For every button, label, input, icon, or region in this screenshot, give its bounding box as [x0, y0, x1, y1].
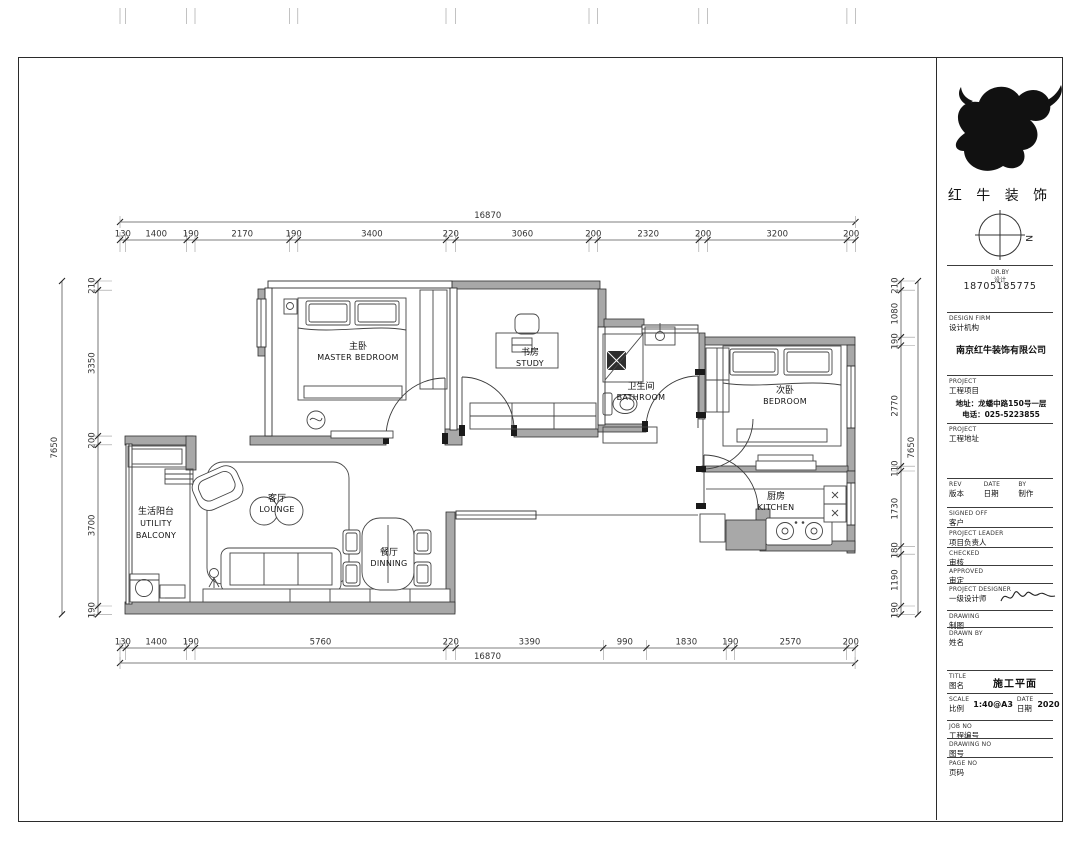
divider: [947, 670, 1053, 671]
master-bedroom-furniture: [284, 290, 447, 438]
project-leader-en: PROJECT LEADER: [949, 530, 1053, 538]
signed-off-en: SIGNED OFF: [949, 510, 1053, 518]
floor-plan-drawing: 1301400190217019034002203060200232020032…: [0, 0, 1080, 864]
label-balcony-en2: BALCONY: [136, 531, 176, 540]
title-row: TITLE 图名 施工平面: [949, 673, 1053, 691]
drawn-by-en: DRAWN BY: [949, 630, 1053, 638]
signed-off-row: SIGNED OFF 客户: [949, 510, 1053, 528]
dim-label: 220: [443, 638, 459, 648]
label-lounge-en: LOUNGE: [259, 505, 294, 514]
drawn-by-row: DRAWN BY 姓名: [949, 630, 1053, 648]
dim-label: 1400: [145, 638, 167, 648]
checked-en: CHECKED: [949, 550, 1053, 558]
divider: [947, 547, 1053, 548]
dim-label: 2320: [637, 230, 659, 240]
dim-label: 3350: [88, 352, 98, 374]
address-line: 地址：龙蟠中路150号一层: [941, 398, 1061, 409]
dim-label: 990: [617, 638, 633, 648]
label-bathroom-en: BATHROOM: [617, 393, 666, 402]
label-study-en: STUDY: [516, 359, 544, 368]
dim-label: 110: [891, 460, 901, 476]
dim-label: 210: [88, 277, 98, 293]
label-master-cn: 主卧: [349, 340, 367, 352]
date-value: 2020: [1037, 700, 1059, 709]
divider: [947, 265, 1053, 266]
date-cn2: 日期: [1017, 704, 1033, 714]
divider: [947, 312, 1053, 313]
dim-label: 130: [115, 638, 131, 648]
page-no-en: PAGE NO: [949, 760, 1053, 768]
bull-logo-icon: [937, 71, 1063, 181]
study-furniture: [470, 314, 596, 429]
company-address: 地址：龙蟠中路150号一层 电话：025-5223855: [941, 398, 1061, 420]
scale-value: 1:40@A3: [973, 700, 1013, 709]
dim-label: 16870: [474, 211, 501, 221]
design-firm-en: DESIGN FIRM: [949, 315, 1053, 323]
rev-en: REV: [949, 481, 984, 489]
dim-label: 1400: [145, 230, 167, 240]
north-compass: N: [937, 207, 1063, 263]
project-cn: 工程项目: [949, 386, 1053, 396]
scale-cn: 比例: [949, 704, 969, 714]
scale-col: SCALE 比例: [949, 696, 969, 714]
divider: [947, 757, 1053, 758]
divider: [947, 507, 1053, 508]
micro-row: DR.BY 设计: [991, 269, 1009, 285]
dim-label: 130: [115, 230, 131, 240]
dim-label: 220: [443, 230, 459, 240]
rev-col: REV 版本: [949, 481, 984, 499]
drawing-title: 施工平面: [993, 675, 1037, 690]
approved-en: APPROVED: [949, 568, 1053, 576]
rev-cn: 版本: [949, 489, 984, 499]
page-no-row: PAGE NO 页码: [949, 760, 1053, 778]
dim-label: 3060: [511, 230, 533, 240]
job-no-en: JOB NO: [949, 723, 1053, 731]
by-en: BY: [1018, 481, 1053, 489]
divider: [947, 627, 1053, 628]
divider: [947, 375, 1053, 376]
micro-cn: 设计: [991, 277, 1009, 285]
label-master-en: MASTER BEDROOM: [317, 353, 398, 362]
dim-label: 5760: [310, 638, 332, 648]
designer-signature: [999, 585, 1057, 609]
label-dining-en: DINNING: [370, 559, 407, 568]
dim-label: 3200: [766, 230, 788, 240]
dim-label: 1730: [891, 498, 901, 520]
date-col: DATE 日期: [984, 481, 1019, 499]
scale-date-row: SCALE 比例 1:40@A3 DATE 日期 2020: [949, 696, 1053, 714]
label-kitchen-en: KITCHEN: [758, 503, 795, 512]
title-block: 红 牛 装 饰 N 18705185775 DR.BY 设计 DESIGN FI…: [936, 57, 1063, 820]
by-cn: 制作: [1018, 489, 1053, 499]
date-en: DATE: [984, 481, 1019, 489]
revision-header: REV 版本 DATE 日期 BY 制作: [949, 481, 1053, 499]
site-labels: PROJECT 工程地址: [949, 426, 1053, 444]
dim-label: 7650: [50, 437, 60, 459]
divider: [947, 610, 1053, 611]
label-dining-cn: 餐厅: [380, 546, 398, 558]
label-balcony-en1: UTILITY: [140, 519, 172, 528]
label-balcony-cn: 生活阳台: [138, 505, 174, 517]
divider: [947, 720, 1053, 721]
page-no-cn: 页码: [949, 768, 1053, 778]
dim-label: 3390: [519, 638, 541, 648]
micro-en: DR.BY: [991, 269, 1009, 277]
dim-label: 1830: [675, 638, 697, 648]
project-leader-row: PROJECT LEADER 项目负责人: [949, 530, 1053, 548]
date-en2: DATE: [1017, 696, 1033, 704]
dim-label: 16870: [474, 652, 501, 662]
design-firm-labels: DESIGN FIRM 设计机构: [949, 315, 1053, 333]
divider: [947, 565, 1053, 566]
project-labels: PROJECT 工程项目: [949, 378, 1053, 396]
label-bathroom-cn: 卫生间: [627, 380, 654, 392]
dim-label: 7650: [907, 437, 917, 459]
project-en: PROJECT: [949, 378, 1053, 386]
label-bedroom-cn: 次卧: [776, 384, 794, 396]
site-en: PROJECT: [949, 426, 1053, 434]
label-bedroom-en: BEDROOM: [763, 397, 807, 406]
design-firm-name: 南京红牛装饰有限公司: [943, 343, 1059, 356]
divider: [947, 527, 1053, 528]
dim-label: 3400: [361, 230, 383, 240]
floorplan-sheet: 1301400190217019034002203060200232020032…: [0, 0, 1080, 864]
dim-label: 2770: [891, 395, 901, 417]
label-lounge-cn: 客厅: [268, 492, 286, 504]
dim-label: 3700: [88, 515, 98, 537]
drawing-no-en: DRAWING NO: [949, 741, 1053, 749]
label-kitchen-cn: 厨房: [767, 490, 785, 502]
drawn-by-cn: 姓名: [949, 638, 1053, 648]
dim-label: 2570: [780, 638, 802, 648]
divider: [947, 583, 1053, 584]
company-logo-text: 红 牛 装 饰: [937, 185, 1063, 205]
checked-cn: 审核: [949, 558, 1053, 568]
design-firm-cn: 设计机构: [949, 323, 1053, 333]
by-col: BY 制作: [1018, 481, 1053, 499]
dim-label: 1190: [891, 569, 901, 591]
dim-label: 1080: [891, 303, 901, 325]
divider: [947, 738, 1053, 739]
label-study-cn: 书房: [521, 346, 539, 358]
dim-label: 210: [891, 277, 901, 293]
divider: [947, 478, 1053, 479]
site-cn: 工程地址: [949, 434, 1053, 444]
tel-line: 电话：025-5223855: [941, 409, 1061, 420]
compass-north-label: N: [1023, 235, 1033, 242]
drawing-row: DRAWING 制图: [949, 613, 1053, 631]
job-no-cn: 工程编号: [949, 731, 1053, 741]
scale-en: SCALE: [949, 696, 969, 704]
dim-label: 2170: [231, 230, 253, 240]
divider: [947, 423, 1053, 424]
drawing-en: DRAWING: [949, 613, 1053, 621]
date-cn: 日期: [984, 489, 1019, 499]
divider: [947, 693, 1053, 694]
date-col2: DATE 日期: [1017, 696, 1033, 714]
